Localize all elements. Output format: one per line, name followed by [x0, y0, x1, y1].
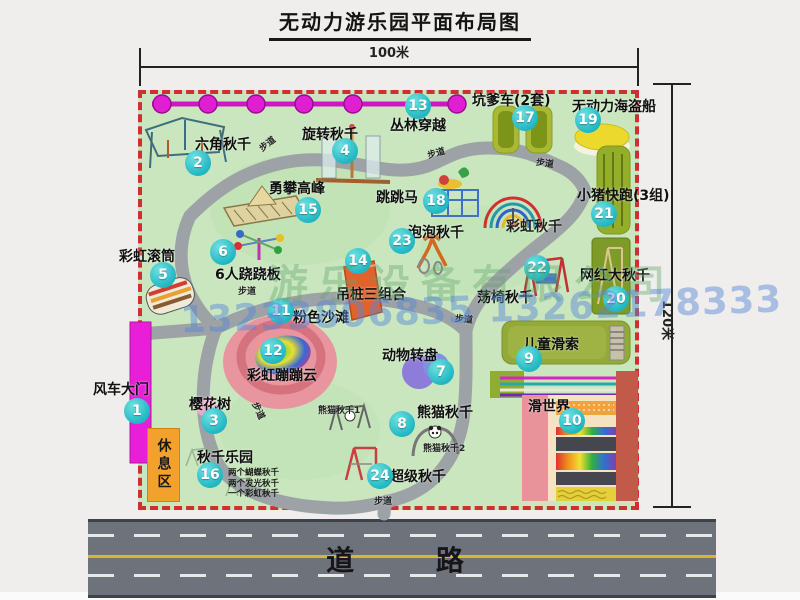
attraction-badge-16: 16: [197, 462, 223, 488]
attraction-badge-10: 10: [559, 408, 585, 434]
attraction-label-8: 熊猫秋千: [417, 402, 473, 422]
attraction-badge-2: 2: [185, 150, 211, 176]
attraction-badge-1: 1: [124, 398, 150, 424]
attraction-badge-12: 12: [260, 338, 286, 364]
attraction-label-18: 跳跳马: [376, 187, 418, 207]
attraction-badge-19: 19: [575, 107, 601, 133]
map-label: 熊猫秋千2: [423, 441, 465, 454]
attraction-badge-21: 21: [591, 201, 617, 227]
screenshot-root: 无动力游乐园平面布局图 100米 120米: [0, 0, 800, 600]
attraction-badge-17: 17: [512, 105, 538, 131]
attraction-badge-13: 13: [405, 93, 431, 119]
attraction-notes-16: 两个蝴蝶秋千两个发光秋千一个彩虹秋千: [228, 468, 279, 500]
attraction-badge-4: 4: [332, 138, 358, 164]
attraction-badge-15: 15: [295, 197, 321, 223]
attraction-badge-9: 9: [516, 346, 542, 372]
attraction-label-12: 彩虹蹦蹦云: [247, 365, 317, 385]
attraction-badge-23: 23: [389, 228, 415, 254]
path-label: 步道: [535, 155, 555, 170]
attraction-badge-8: 8: [389, 411, 415, 437]
attraction-badge-24: 24: [367, 463, 393, 489]
attraction-badge-5: 5: [150, 262, 176, 288]
attraction-label-15: 勇攀高峰: [269, 178, 325, 198]
attraction-label-23: 泡泡秋千: [408, 222, 464, 242]
map-label: 熊猫秋千1: [318, 403, 360, 416]
attraction-label-7: 动物转盘: [382, 345, 438, 365]
path-label: 步道: [374, 494, 392, 507]
attraction-badge-18: 18: [423, 188, 449, 214]
attraction-label-21: 小猪快跑(3组): [577, 185, 670, 205]
attraction-badge-6: 6: [210, 239, 236, 265]
attraction-badge-3: 3: [201, 408, 227, 434]
path-label: 步道: [256, 133, 278, 154]
attraction-badge-7: 7: [428, 359, 454, 385]
attraction-label-1: 风车大门: [93, 379, 149, 399]
path-label: 步道: [249, 400, 268, 422]
path-label: 步道: [426, 144, 447, 161]
attraction-label-17: 坑爹车(2套): [472, 90, 551, 110]
map-label: 彩虹秋千: [506, 216, 562, 236]
attraction-label-24: 超级秋千: [390, 466, 446, 486]
